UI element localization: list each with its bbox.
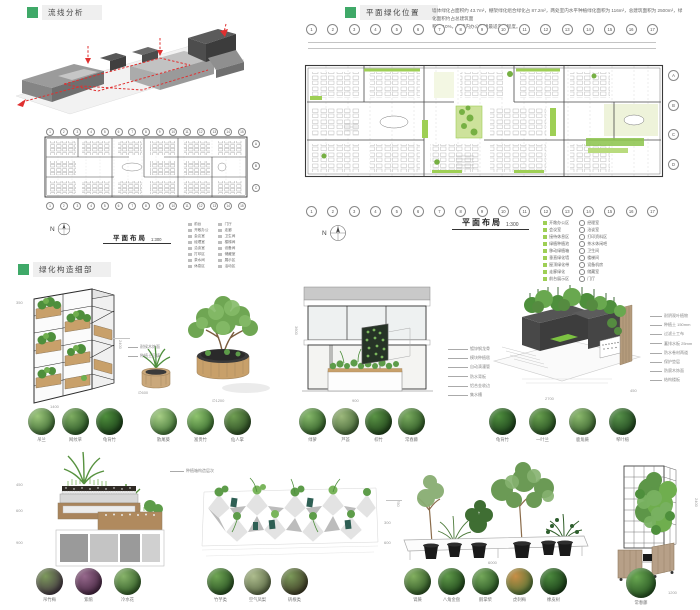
callout-row: 蓄排水板 25mm [650,341,692,347]
plant-thumb: 棕竹 [365,408,392,443]
caption-text: 平面布局 [113,232,147,242]
legend-item: 走廊绿化 [543,269,569,275]
legend-swatch [579,248,585,254]
legend-swatch [543,221,547,225]
dim-label: 350 [16,300,23,305]
dim-label: 1200 [668,590,677,595]
plant-label: 八角金盘 [443,597,460,603]
leader-line [650,371,662,372]
callout-label: 种植土 150mm [664,322,690,328]
legend-label: 接待休息区 [549,234,569,240]
grid-bubble: 5 [101,202,109,210]
grid-bubble: 11 [519,24,530,35]
grid-bubble: 2 [60,202,68,210]
grid-bubble: 14 [583,24,594,35]
dim-label: 900 [352,398,359,403]
callout-row: 铝合金收边 [448,383,490,389]
plant-thumb: 紫鹃 [75,568,102,603]
plan-colored-caption: 平面布局 1:300 [452,217,529,230]
plan-colored-drawing [304,64,664,178]
plan-bw-grid-bottom: 123456789101112131415 [46,202,246,210]
green-square-icon [27,7,38,18]
grid-bubble: 1 [46,128,54,136]
note-line-1: 墙体绿化占面积约 43.7m²，棚架绿化组合绿化占 87.2m²，两处室内水平种… [432,7,684,23]
dim-label: 900 [16,540,23,545]
plant-photo [75,568,102,595]
legend-swatch [188,247,192,251]
callout-label: 防水背板 [470,374,486,380]
callout-label: 模块种植毯 [470,355,490,361]
legend-item: 楼梯间 [218,240,235,245]
dim-label: 2400 [118,340,123,349]
section-header-detail: 绿化构造细部 [18,262,111,277]
grid-bubble: 14 [583,206,594,217]
legend-label: 开敞办公 [194,228,208,233]
plant-photo [244,568,271,595]
grid-bubble: 15 [238,202,246,210]
legend-swatch [188,241,192,245]
legend-column-areas: 开敞办公区会议室接待休息区绿植种植池移动绿植箱垂直绿化墙屋顶绿化带走廊绿化前台展… [543,220,569,282]
plant-thumb: 绿萝 [299,408,326,443]
grid-bubble: A [668,70,679,81]
legend-swatch [543,242,547,246]
plant-thumb: 虎刺梅 [506,568,533,603]
plan-bw-caption: 平面布局 1:300 [103,232,171,244]
legend-item: 门厅 [218,222,235,227]
plant-label: 竹芋类 [214,597,227,603]
plant-label: 散尾葵 [157,437,170,443]
grid-bubble: 2 [327,24,338,35]
leader-line [170,471,184,472]
legend-swatch [218,235,222,239]
facade-wall-callouts: 镀锌钢龙骨模块种植毯自动滴灌管防水背板铝合金收边集水槽 [448,346,490,398]
callout-label: 自动滴灌管 [470,364,490,370]
legend-item: 打印区 [188,252,208,257]
grid-bubble: 4 [370,206,381,217]
plant-thumb: 鹅掌柴 [472,568,499,603]
leader-line [650,343,662,344]
legend-item: 会议室 [188,234,208,239]
legend-swatch [543,277,547,281]
legend-swatch [579,220,585,226]
legend-item: 茶水休闲吧 [579,241,607,247]
legend-label: 门厅 [587,276,595,282]
grid-bubble: 4 [370,24,381,35]
legend-label: 卫生间 [587,248,599,254]
plant-thumb: 龟背竹 [489,408,516,443]
callout-label: 种植土回填 [140,353,160,359]
callout-label: 集水槽 [470,392,482,398]
callout-row: 镀锌钢龙骨 [448,346,490,352]
green-roof-unit-render [492,283,642,405]
callout-label: 种植箱构造层次 [186,468,214,474]
grid-bubble: 3 [73,202,81,210]
grid-bubble: 6 [115,128,123,136]
plant-photo [332,408,359,435]
north-arrow-bw: N [50,222,71,236]
callout-label: 结构楼板 [664,377,680,383]
plant-thumb: 琴叶榕 [609,408,636,443]
plant-photo [472,568,499,595]
legend-swatch [218,259,222,263]
connector-line [112,338,130,339]
legend-label: 休息区 [194,264,205,269]
plant-thumb: 常春藤 [626,568,656,606]
legend-label: 开敞办公区 [549,220,569,226]
legend-label: 前台展示区 [549,276,569,282]
grid-bubble: 16 [626,24,637,35]
dim-label: 750 [396,500,401,507]
grid-bubble: 11 [183,128,191,136]
connector-line [386,500,402,501]
north-arrow-colored: N [322,224,347,242]
leader-line [650,325,662,326]
callout-label: 耐候木饰面 [140,344,160,350]
legend-label: 展示区 [225,258,236,263]
caption-scale: 1:300 [506,222,519,228]
legend-swatch [543,249,547,253]
grid-bubble: 15 [604,206,615,217]
dim-label: ∅600 [138,390,148,395]
legend-label: 设备间 [225,246,236,251]
plant-label: 鹿角蕨 [576,437,589,443]
legend-column-rooms: 经理室洽谈室打印资料区茶水休闲吧卫生间楼梯间设备机房储藏室门厅 [579,220,607,282]
plant-photo [36,568,63,595]
green-square-icon [345,7,356,18]
platform-pots-render [402,458,592,566]
grid-bubble: 9 [477,24,488,35]
leader-line [448,386,468,387]
grid-bubble: B [668,100,679,111]
plant-thumb: 富贵竹 [187,408,214,443]
grid-bubble: 6 [413,24,424,35]
grid-bubble: 15 [238,128,246,136]
legend-item: 接待休息区 [543,234,569,240]
plan-colored-legend: 开敞办公区会议室接待休息区绿植种植池移动绿植箱垂直绿化墙屋顶绿化带走廊绿化前台展… [543,220,607,282]
legend-label: 移动绿植箱 [549,248,569,254]
grid-bubble: 2 [60,128,68,136]
legend-label: 会议室 [194,234,205,239]
legend-label: 设备机房 [587,262,603,268]
legend-item: 开敞办公区 [543,220,569,226]
plant-thumbs-shelf: 吊兰网纹草龟背竹 [28,408,123,443]
roof-layer-callouts: 耐阴观叶植物种植土 150mm过滤土工布蓄排水板 25mm防水卷材两道保护垫层防… [650,313,692,383]
section-title: 平面绿化位置 [360,5,438,20]
legend-item: 洽谈室 [188,246,208,251]
grid-bubble: 12 [197,202,205,210]
legend-item: 楼梯间 [579,255,607,261]
leader-line [128,356,138,357]
callout-row: 种植土 150mm [650,322,692,328]
plant-label: 常春藤 [405,437,418,443]
plant-thumb: 芦荟 [332,408,359,443]
dim-label: 300 [384,520,391,525]
legend-item: 储藏室 [579,269,607,275]
legend-label: 洽谈室 [194,246,205,251]
legend-item: 储藏室 [218,252,235,257]
north-compass-icon [57,222,71,236]
plan-colored-grid-right: ABCD [668,70,679,170]
plant-label: 棕竹 [374,437,383,443]
green-square-icon [18,264,29,275]
callout-label: 保护垫层 [664,359,680,365]
plant-thumb: 常春藤 [398,408,425,443]
callout-label: 耐阴观叶植物 [664,313,688,319]
legend-swatch [579,241,585,247]
plan-colored-grid-top: 1234567891011121314151617 [306,24,658,35]
callout-row: 耐候木饰面 [128,344,160,350]
grid-bubble: B [252,162,260,170]
grid-bubble: 3 [349,24,360,35]
legend-label: 茶水休闲吧 [587,241,607,247]
legend-item: 前台 [188,222,208,227]
plant-thumb: 鹿角蕨 [569,408,596,443]
legend-swatch [579,262,585,268]
dimension-line [308,42,656,43]
dim-label: ∅1200 [212,398,224,403]
legend-swatch [218,223,222,227]
leader-line [650,353,662,354]
leader-line [448,358,468,359]
plant-label: 常春藤 [635,600,648,606]
plant-thumb: 一叶兰 [529,408,556,443]
legend-label: 门厅 [225,222,232,227]
legend-swatch [579,269,585,275]
legend-swatch [218,253,222,257]
legend-label: 走廊 [225,228,232,233]
plant-photo [529,408,556,435]
legend-swatch [218,241,222,245]
plant-label: 吊兰 [37,437,46,443]
legend-item: 茶水间 [188,258,208,263]
plant-thumb: 仙人掌 [224,408,251,443]
plant-thumb: 龟背竹 [96,408,123,443]
plant-label: 仙人掌 [231,437,244,443]
north-letter: N [322,230,327,237]
grid-bubble: 8 [142,128,150,136]
grid-bubble: 1 [306,206,317,217]
plant-label: 橡皮树 [547,597,560,603]
section-header-greening: 平面绿化位置 [345,5,438,20]
legend-item: 卫生间 [218,234,235,239]
plant-photo [224,408,251,435]
plant-photo [114,568,141,595]
legend-swatch [218,265,222,269]
legend-swatch [543,270,547,274]
legend-label: 绿植种植池 [549,241,569,247]
legend-item: 屋顶绿化带 [543,262,569,268]
grid-bubble: 6 [115,202,123,210]
north-compass-icon [329,224,347,242]
plant-thumbs-platform: 肾蕨八角金盘鹅掌柴虎刺梅橡皮树 [404,568,567,603]
callout-row: 保护垫层 [650,359,692,365]
plant-label: 冷水花 [121,597,134,603]
shelf-planter-render [28,285,123,407]
plant-photo [506,568,533,595]
legend-item: 经理室 [579,220,607,226]
plant-photo [398,408,425,435]
grid-bubble: 10 [498,206,509,217]
plant-label: 龟背竹 [103,437,116,443]
dim-label: 450 [630,388,637,393]
legend-item: 移动绿植箱 [543,248,569,254]
grid-bubble: 13 [562,206,573,217]
grid-bubble: 13 [210,202,218,210]
legend-item: 会议室 [543,227,569,233]
plant-label: 琴叶榕 [616,437,629,443]
legend-item: 前台展示区 [543,276,569,282]
dim-label: 450 [16,482,23,487]
grid-bubble: 9 [156,202,164,210]
callout-row: 集水槽 [448,392,490,398]
dim-label: 600 [384,540,391,545]
legend-item: 活动区 [218,264,235,269]
plant-thumb: 竹芋类 [207,568,234,603]
plant-photo [96,408,123,435]
plant-thumbs-roof: 龟背竹一叶兰鹿角蕨琴叶榕 [489,408,636,443]
legend-label: 经理室 [194,240,205,245]
legend-label: 卫生间 [225,234,236,239]
plant-label: 鹅掌柴 [479,597,492,603]
grid-bubble: 12 [540,24,551,35]
legend-column-1: 前台开敞办公会议室经理室洽谈室打印区茶水间休息区 [188,222,208,269]
legend-item: 展示区 [218,258,235,263]
grid-bubble: C [252,184,260,192]
grid-bubble: 4 [87,202,95,210]
grid-bubble: 16 [626,206,637,217]
grid-bubble: 14 [224,202,232,210]
plant-photo [609,408,636,435]
grid-bubble: C [668,129,679,140]
grid-bubble: 17 [647,24,658,35]
section-title: 绿化构造细部 [33,262,111,277]
dim-label: 600 [16,508,23,513]
legend-item: 垂直绿化墙 [543,255,569,261]
callout-row: 耐阴观叶植物 [650,313,692,319]
grid-bubble: 3 [349,206,360,217]
legend-swatch [543,256,547,260]
legend-label: 会议室 [549,227,561,233]
grid-bubble: 8 [142,202,150,210]
plant-photo [404,568,431,595]
grid-bubble: 3 [73,128,81,136]
legend-swatch [188,223,192,227]
grid-bubble: 2 [327,206,338,217]
plant-photo [62,408,89,435]
plant-label: 空气凤梨 [249,597,266,603]
grid-bubble: 9 [477,206,488,217]
legend-label: 垂直绿化墙 [549,255,569,261]
legend-swatch [579,227,585,233]
legend-swatch [188,259,192,263]
leader-line [448,376,468,377]
north-letter: N [50,226,55,233]
legend-item: 卫生间 [579,248,607,254]
callout-row: 模块种植毯 [448,355,490,361]
callout-label: 铝合金收边 [470,383,490,389]
legend-item: 打印资料区 [579,234,607,240]
legend-label: 茶水间 [194,258,205,263]
legend-item: 绿植种植池 [543,241,569,247]
plant-photo [281,568,308,595]
grid-bubble: 8 [455,24,466,35]
legend-item: 门厅 [579,276,607,282]
plant-photo [187,408,214,435]
legend-label: 打印资料区 [587,234,607,240]
grid-bubble: D [668,159,679,170]
grid-bubble: 4 [87,128,95,136]
stepped-planter-render [26,448,168,568]
legend-swatch [218,247,222,251]
plant-thumbs-faceted: 竹芋类空气凤梨矾根类 [207,568,308,603]
callout-row: 种植土回填 [128,353,160,359]
plant-thumb: 冷水花 [114,568,141,603]
grid-bubble: 6 [413,206,424,217]
legend-label: 储藏室 [587,269,599,275]
plant-thumbs-pots: 散尾葵富贵竹仙人掌 [150,408,251,443]
leader-line [650,362,662,363]
callout-row: 结构楼板 [650,377,692,383]
legend-label: 屋顶绿化带 [549,262,569,268]
pot-callouts: 耐候木饰面种植土回填 [128,344,160,359]
plant-label: 富贵竹 [194,437,207,443]
legend-swatch [579,255,585,261]
plant-photo [299,408,326,435]
legend-swatch [543,235,547,239]
dim-label: 2400 [694,498,699,507]
plant-thumb: 橡皮树 [540,568,567,603]
plant-photo [489,408,516,435]
green-wall-panel-detail [358,322,416,368]
plant-thumb: 空气凤梨 [244,568,271,603]
grid-bubble: 10 [498,24,509,35]
grid-bubble: 5 [391,24,402,35]
legend-item: 设备机房 [579,262,607,268]
callout-label: 防腐木饰面 [664,368,684,374]
grid-bubble: 8 [455,206,466,217]
plant-label: 紫鹃 [84,597,93,603]
plant-photo [28,408,55,435]
leader-line [448,395,468,396]
callout-row: 过滤土工布 [650,331,692,337]
grid-bubble: 10 [169,128,177,136]
plant-thumb: 吊兰 [28,408,55,443]
legend-swatch [543,228,547,232]
plant-label: 一叶兰 [536,437,549,443]
plant-photo [540,568,567,595]
presentation-board: 流线分析 [0,0,700,610]
plant-photo [569,408,596,435]
grid-bubble: 10 [169,202,177,210]
plant-label: 虎刺梅 [513,597,526,603]
faceted-green-wall-render [198,476,388,568]
plan-bw-grid-right: ABC [252,140,260,192]
grid-bubble: 7 [128,202,136,210]
grid-bubble: 11 [183,202,191,210]
plan-colored-grid-bottom: 1234567891011121314151617 [306,206,658,217]
plant-thumb: 八角金盘 [438,568,465,603]
grid-bubble: 1 [306,24,317,35]
axon-massing-diagram [12,18,247,118]
legend-swatch [188,253,192,257]
plant-thumbs-trellis: 常春藤 [626,568,656,606]
plant-label: 芦荟 [341,437,350,443]
leader-line [448,367,468,368]
legend-item: 开敞办公 [188,228,208,233]
grid-bubble: 9 [156,128,164,136]
legend-label: 前台 [194,222,201,227]
dim-label: 6000 [488,560,497,565]
